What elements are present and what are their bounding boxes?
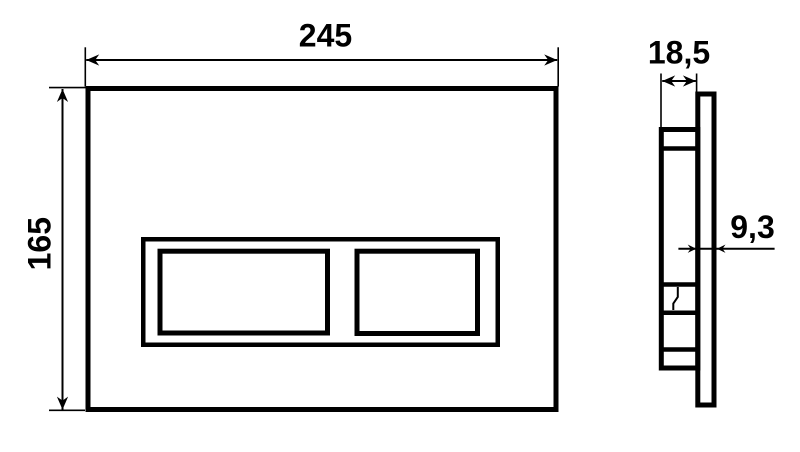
svg-text:9,3: 9,3 [730, 209, 774, 245]
svg-text:165: 165 [22, 217, 58, 270]
svg-text:18,5: 18,5 [648, 35, 710, 71]
svg-text:245: 245 [299, 17, 352, 53]
